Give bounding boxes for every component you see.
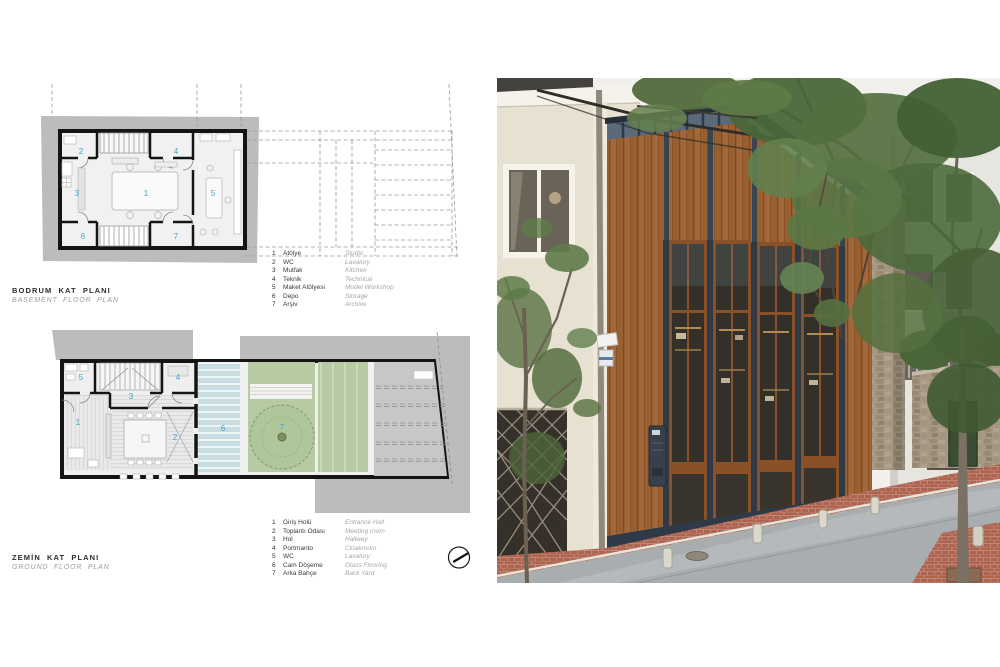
legend-row: 5Maket AtölyesiModel Workshop <box>272 284 394 293</box>
legend-label-english: Lavatory <box>345 259 370 268</box>
legend-label-turkish: Portmanto <box>283 545 345 554</box>
basement-floor-plan: 1 2 3 4 5 6 7 <box>0 60 480 270</box>
ground-legend: 1Giriş HolüEntrance Hall 2Toplantı Odası… <box>272 519 387 579</box>
legend-label-english: Lavatory <box>345 553 370 562</box>
legend-label-turkish: Hol <box>283 536 345 545</box>
legend-number: 5 <box>272 553 283 562</box>
legend-label-english: Kitchen <box>345 267 367 276</box>
legend-number: 5 <box>272 284 283 293</box>
plan-title-english: BASEMENT FLOOR PLAN <box>12 297 119 304</box>
legend-label-turkish: Arşiv <box>283 301 345 310</box>
legend-row: 1AtölyeStudio <box>272 250 394 259</box>
legend-row: 7ArşivArchive <box>272 301 394 310</box>
legend-row: 4PortmantoCloakroom <box>272 545 387 554</box>
legend-number: 4 <box>272 545 283 554</box>
plan-title-turkish: ZEMİN KAT PLANI <box>12 553 110 562</box>
legend-label-english: Model Workshop <box>345 284 394 293</box>
legend-label-english: Archive <box>345 301 367 310</box>
legend-label-english: Technical <box>345 276 372 285</box>
intercom-panel <box>649 426 666 486</box>
legend-label-turkish: Atölye <box>283 250 345 259</box>
driveway-gate-marker <box>414 371 433 379</box>
presentation-board: 1 2 3 4 5 6 7 1AtölyeStudio 2WCLavatory … <box>0 0 1000 667</box>
legend-row: 5WCLavatory <box>272 553 387 562</box>
legend-label-turkish: Giriş Holü <box>283 519 345 528</box>
room-number: 5 <box>79 373 84 382</box>
legend-row: 6DepoStorage <box>272 293 394 302</box>
legend-row: 4TeknikTechnical <box>272 276 394 285</box>
legend-number: 1 <box>272 519 283 528</box>
north-arrow-icon <box>445 544 473 572</box>
room-number: 2 <box>79 147 84 156</box>
ground-floor-plan: 1 2 3 4 5 6 7 <box>0 322 480 522</box>
room-number: 4 <box>174 147 179 156</box>
legend-label-english: Hallway <box>345 536 368 545</box>
room-number: 3 <box>75 189 80 198</box>
manhole-cover <box>686 552 708 561</box>
legend-number: 6 <box>272 293 283 302</box>
legend-label-english: Glass Flooring <box>345 562 387 571</box>
legend-number: 1 <box>272 250 283 259</box>
building-photograph <box>497 78 1000 583</box>
legend-number: 7 <box>272 301 283 310</box>
ground-plan-title: ZEMİN KAT PLANI GROUND FLOOR PLAN <box>12 553 110 571</box>
window-bay <box>713 240 751 532</box>
legend-label-turkish: Maket Atölyesi <box>283 284 345 293</box>
neighbor-window <box>503 164 575 258</box>
legend-row: 7Arka BahçeBack Yard <box>272 570 387 579</box>
basement-stairs-down <box>100 226 148 246</box>
legend-row: 1Giriş HolüEntrance Hall <box>272 519 387 528</box>
legend-label-turkish: WC <box>283 259 345 268</box>
legend-label-english: Back Yard <box>345 570 374 579</box>
legend-number: 7 <box>272 570 283 579</box>
glass-flooring <box>198 362 240 472</box>
legend-number: 2 <box>272 528 283 537</box>
legend-number: 3 <box>272 536 283 545</box>
legend-label-english: Studio <box>345 250 363 259</box>
room-number: 3 <box>129 392 134 401</box>
legend-row: 2Toplantı OdasıMeeting room <box>272 528 387 537</box>
basement-legend: 1AtölyeStudio 2WCLavatory 3MutfakKitchen… <box>272 250 394 310</box>
legend-label-english: Meeting room <box>345 528 385 537</box>
plan-title-turkish: BODRUM KAT PLANI <box>12 286 119 295</box>
basement-plan-title: BODRUM KAT PLANI BASEMENT FLOOR PLAN <box>12 286 119 304</box>
legend-row: 3MutfakKitchen <box>272 267 394 276</box>
legend-label-turkish: Toplantı Odası <box>283 528 345 537</box>
ground-stairs <box>100 363 160 390</box>
legend-number: 6 <box>272 562 283 571</box>
legend-label-english: Entrance Hall <box>345 519 384 528</box>
room-number: 6 <box>81 232 86 241</box>
room-number: 1 <box>144 189 149 198</box>
room-number: 5 <box>211 189 216 198</box>
garden-strips <box>318 362 368 472</box>
legend-label-turkish: Cam Döşeme <box>283 562 345 571</box>
legend-number: 4 <box>272 276 283 285</box>
legend-label-turkish: Arka Bahçe <box>283 570 345 579</box>
legend-number: 3 <box>272 267 283 276</box>
legend-row: 2WCLavatory <box>272 259 394 268</box>
tree-trunk <box>278 433 286 441</box>
window-bay <box>669 240 707 536</box>
room-number: 2 <box>173 433 178 442</box>
legend-label-turkish: Depo <box>283 293 345 302</box>
room-number: 6 <box>221 424 226 433</box>
legend-label-turkish: WC <box>283 553 345 562</box>
door-wreath <box>549 192 561 204</box>
plan-title-english: GROUND FLOOR PLAN <box>12 564 110 571</box>
room-number: 4 <box>176 373 181 382</box>
room-number: 7 <box>280 423 285 432</box>
legend-label-english: Cloakroom <box>345 545 376 554</box>
legend-label-english: Storage <box>345 293 368 302</box>
legend-label-turkish: Teknik <box>283 276 345 285</box>
room-number: 1 <box>76 418 81 427</box>
legend-row: 6Cam DöşemeGlass Flooring <box>272 562 387 571</box>
legend-number: 2 <box>272 259 283 268</box>
legend-label-turkish: Mutfak <box>283 267 345 276</box>
legend-row: 3HolHallway <box>272 536 387 545</box>
room-number: 7 <box>174 232 179 241</box>
